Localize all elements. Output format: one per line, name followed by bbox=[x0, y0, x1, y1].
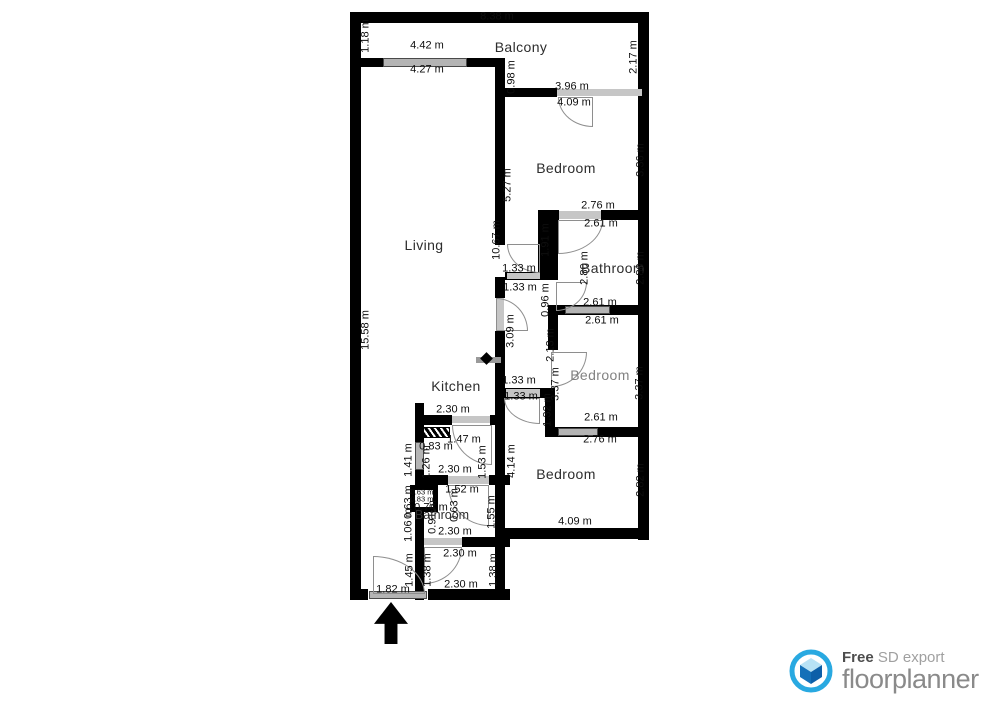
wall-kitchen-bottom-b bbox=[490, 415, 505, 425]
wall-bathroom2-bottom-a bbox=[415, 537, 424, 547]
dimension-label: 4.14 m bbox=[507, 444, 518, 478]
floorplan-canvas: Free SD export floorplanner 8.38 m1.18 m… bbox=[0, 0, 1000, 707]
dimension-label: 0.96 m bbox=[541, 283, 552, 317]
room-label: Balcony bbox=[495, 40, 548, 54]
dimension-label: 5.27 m bbox=[503, 168, 514, 202]
dimension-label: 1.26 m bbox=[422, 445, 433, 479]
dimension-label: 10.67 m bbox=[492, 220, 503, 260]
dimension-label: 1.33 m bbox=[502, 376, 536, 387]
dimension-label: 3.37 m bbox=[635, 366, 646, 400]
room-label: Bedroom bbox=[570, 368, 630, 382]
dimension-label: 2.17 m bbox=[629, 40, 640, 74]
dimension-label: 4.09 m bbox=[557, 98, 591, 109]
brand-name: floorplanner bbox=[842, 665, 979, 693]
entrance-arrow-icon bbox=[374, 602, 408, 644]
dimension-label: 3.09 m bbox=[506, 314, 517, 348]
wall-outer-bottom-b bbox=[428, 589, 510, 600]
dimension-label: 15.58 m bbox=[361, 310, 372, 350]
dimension-label: 1.38 m bbox=[423, 553, 434, 587]
floorplanner-logo-icon bbox=[788, 648, 834, 694]
dimension-label: 1.91 m bbox=[541, 223, 552, 257]
dimension-label: 3.96 m bbox=[555, 82, 589, 93]
kitchen-appliance-icon bbox=[423, 427, 450, 438]
dimension-label: 1.18 m bbox=[361, 19, 372, 53]
wall-bathroom1-top-a bbox=[548, 210, 559, 220]
dimension-label: 0.98 m bbox=[507, 60, 518, 94]
dimension-label: 1.33 m bbox=[504, 392, 538, 403]
dimension-label: 2.30 m bbox=[443, 549, 477, 560]
wall-bedroom3-bottom bbox=[495, 528, 649, 539]
door-threshold-kitchen bbox=[452, 416, 490, 423]
dimension-label: 1.41 m bbox=[404, 443, 415, 477]
dimension-label: 4.09 m bbox=[558, 517, 592, 528]
dimension-label: 2.76 m bbox=[581, 201, 615, 212]
dimension-label: 1.33 m bbox=[503, 283, 537, 294]
dimension-label: 2.30 m bbox=[438, 527, 472, 538]
room-label: Bedroom bbox=[536, 467, 596, 481]
dimension-label: 3.36 m bbox=[636, 143, 647, 177]
dimension-label: 1.06 m bbox=[404, 508, 415, 542]
free-export-label: Free SD export bbox=[842, 650, 979, 665]
dimension-label: 2.30 m bbox=[436, 405, 470, 416]
dimension-label: 1.38 m bbox=[489, 553, 500, 587]
dimension-label: 2.30 m bbox=[438, 465, 472, 476]
wall-bedroom1-top-a bbox=[495, 88, 557, 97]
door-threshold-hall bbox=[424, 538, 462, 545]
room-label: Kitchen bbox=[431, 379, 481, 393]
dimension-label: 1.55 m bbox=[487, 495, 498, 529]
wall-balcony-right bbox=[638, 12, 649, 97]
dimension-label: 2.80 m bbox=[636, 251, 647, 285]
room-label: Bedroom bbox=[536, 161, 596, 175]
dimension-label: 2.61 m bbox=[585, 316, 619, 327]
dimension-label: 2.61 m bbox=[584, 413, 618, 424]
wall-kitchen-bottom-a bbox=[415, 415, 452, 425]
room-label: Bathroom bbox=[415, 509, 469, 522]
dimension-label: 2.61 m bbox=[583, 298, 617, 309]
dimension-label: 2.30 m bbox=[444, 580, 478, 591]
dimension-label: 2.76 m bbox=[583, 435, 617, 446]
dimension-label: 1.33 m bbox=[502, 264, 536, 275]
wall-outer-bottom-a bbox=[350, 589, 368, 600]
dimension-label: 1.53 m bbox=[478, 445, 489, 479]
dimension-label: 1.82 m bbox=[376, 585, 410, 596]
dimension-label: 4.27 m bbox=[410, 65, 444, 76]
floorplanner-logo: Free SD export floorplanner bbox=[788, 648, 979, 694]
dimension-label: 1.45 m bbox=[405, 553, 416, 587]
dimension-label: 2.61 m bbox=[584, 219, 618, 230]
wall-outer-left bbox=[350, 12, 361, 600]
wall-bathroom2-bottom-b bbox=[462, 537, 510, 547]
dimension-label: 2.13 m bbox=[546, 328, 557, 362]
dimension-label: 1.32 m bbox=[543, 393, 554, 427]
dimension-label: 8.38 m bbox=[480, 12, 514, 23]
room-label: Living bbox=[405, 238, 444, 252]
dimension-label: 2.82 m bbox=[636, 463, 647, 497]
dimension-label: 4.42 m bbox=[410, 41, 444, 52]
